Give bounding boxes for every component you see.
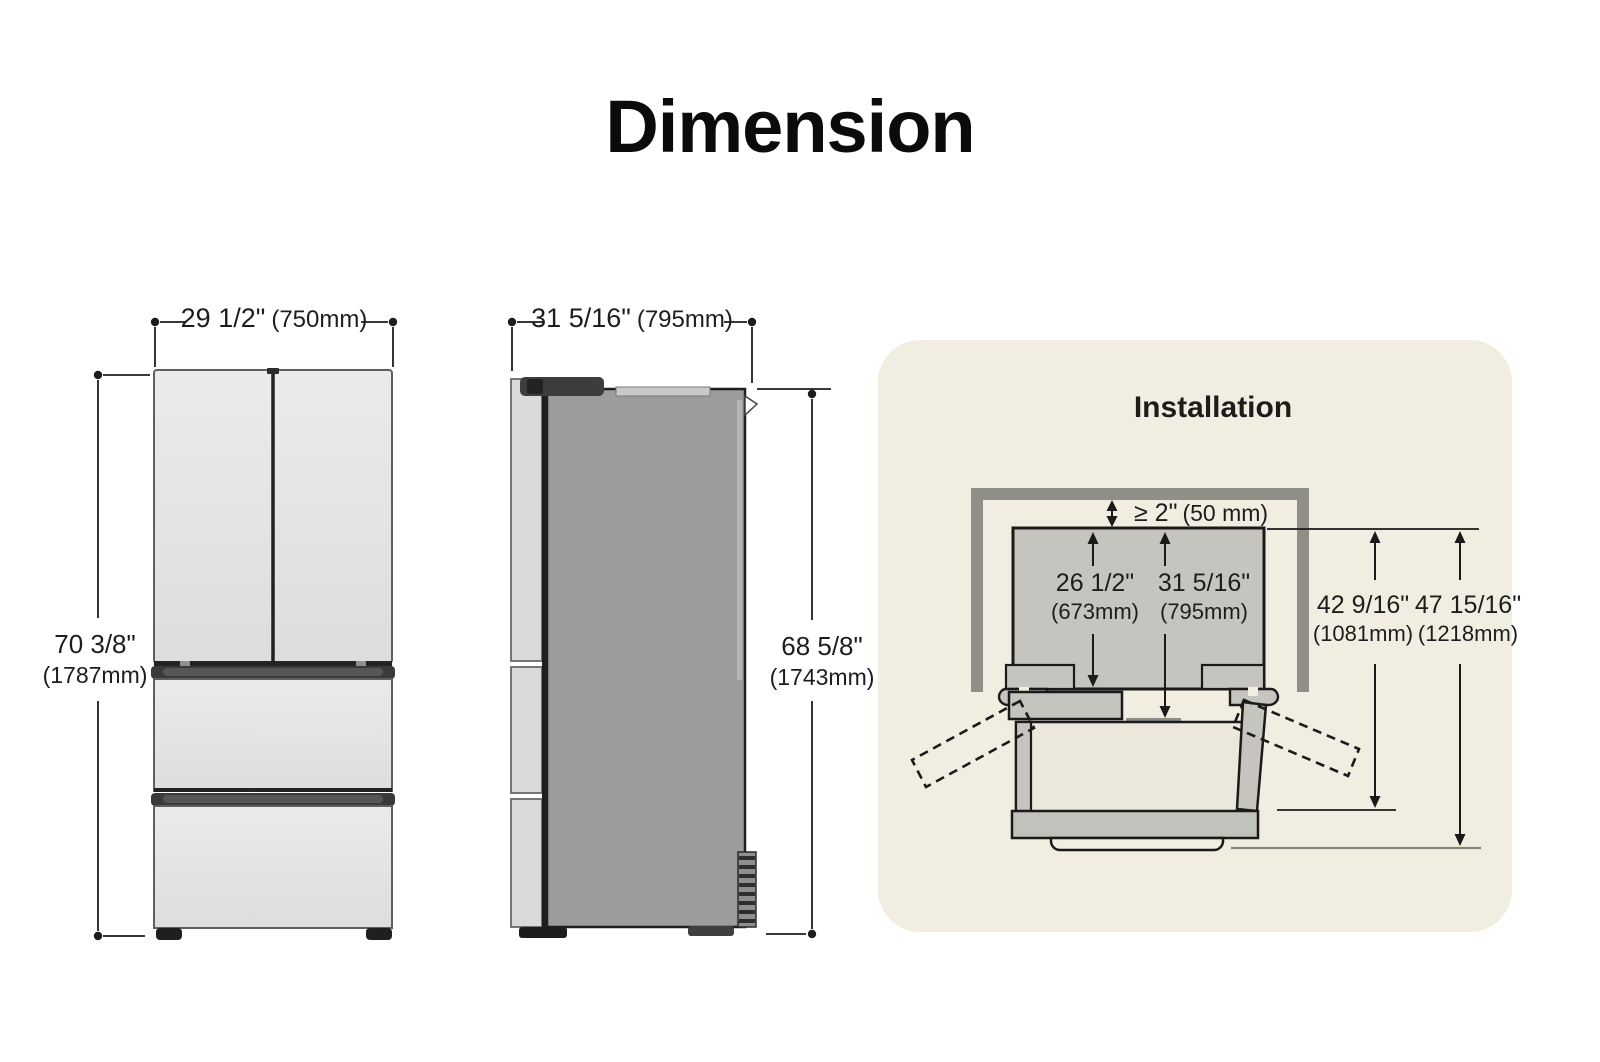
depth-door-open-label: 42 9/16" (1081mm) <box>1313 590 1413 648</box>
front-view-drawing <box>151 368 395 940</box>
front-top-hinge <box>267 368 279 374</box>
side-height-label: 68 5/8" (1743mm) <box>770 630 875 692</box>
side-hinge-pin-notch <box>745 396 757 415</box>
side-height-inch: 68 5/8" <box>770 630 875 662</box>
side-door-edge-bottom <box>511 799 542 927</box>
front-height-inch: 70 3/8" <box>43 628 148 660</box>
dimension-page: Dimension <box>0 0 1600 1062</box>
cabinet-depth-label: 26 1/2" (673mm) <box>1051 568 1139 626</box>
front-doors <box>154 370 392 663</box>
front-height-mm: (1787mm) <box>43 660 148 690</box>
front-handle-bar-1 <box>151 666 395 679</box>
clearance-inch: ≥ 2" <box>1134 499 1177 527</box>
side-depth-label: 31 5/16"(795mm) <box>531 303 733 334</box>
front-bottom-drawer <box>154 806 392 928</box>
side-height-mm: (1743mm) <box>770 662 875 692</box>
cabinet-depth-mm: (673mm) <box>1051 598 1139 626</box>
depth-door-open-inch: 42 9/16" <box>1313 590 1413 620</box>
front-width-label: 29 1/2"(750mm) <box>181 303 368 334</box>
front-width-inch: 29 1/2" <box>181 303 266 333</box>
depth-door-open-mm: (1081mm) <box>1313 620 1413 648</box>
depth-total-mm: (1218mm) <box>1415 620 1521 648</box>
cabinet-depth-inch: 26 1/2" <box>1051 568 1139 598</box>
depth-total-label: 47 15/16" (1218mm) <box>1415 590 1521 648</box>
clearance-mm: (50 mm) <box>1182 500 1268 526</box>
page-title: Dimension <box>605 84 974 169</box>
front-middle-drawer <box>154 679 392 791</box>
front-right-foot <box>366 928 392 940</box>
front-handle-bar-2 <box>151 793 395 806</box>
clearance-label: ≥ 2"(50 mm) <box>1134 499 1268 528</box>
front-width-mm: (750mm) <box>271 306 367 333</box>
side-view-drawing <box>511 377 757 938</box>
front-left-foot <box>156 928 182 940</box>
side-depth-inch: 31 5/16" <box>531 303 631 333</box>
installation-title: Installation <box>1134 391 1292 425</box>
side-front-foot <box>519 927 567 938</box>
depth-total-inch: 47 15/16" <box>1415 590 1521 620</box>
side-top-hinge <box>520 377 604 396</box>
side-body <box>547 389 745 927</box>
side-compressor-fins <box>738 852 756 927</box>
side-rear-foot <box>688 926 734 936</box>
depth-with-door-label: 31 5/16" (795mm) <box>1158 568 1250 626</box>
side-door-edge-middle <box>511 667 542 793</box>
side-depth-mm: (795mm) <box>637 306 733 333</box>
depth-with-door-inch: 31 5/16" <box>1158 568 1250 598</box>
front-height-label: 70 3/8" (1787mm) <box>43 628 148 690</box>
side-door-edge-top <box>511 379 542 661</box>
depth-with-door-mm: (795mm) <box>1158 598 1250 626</box>
